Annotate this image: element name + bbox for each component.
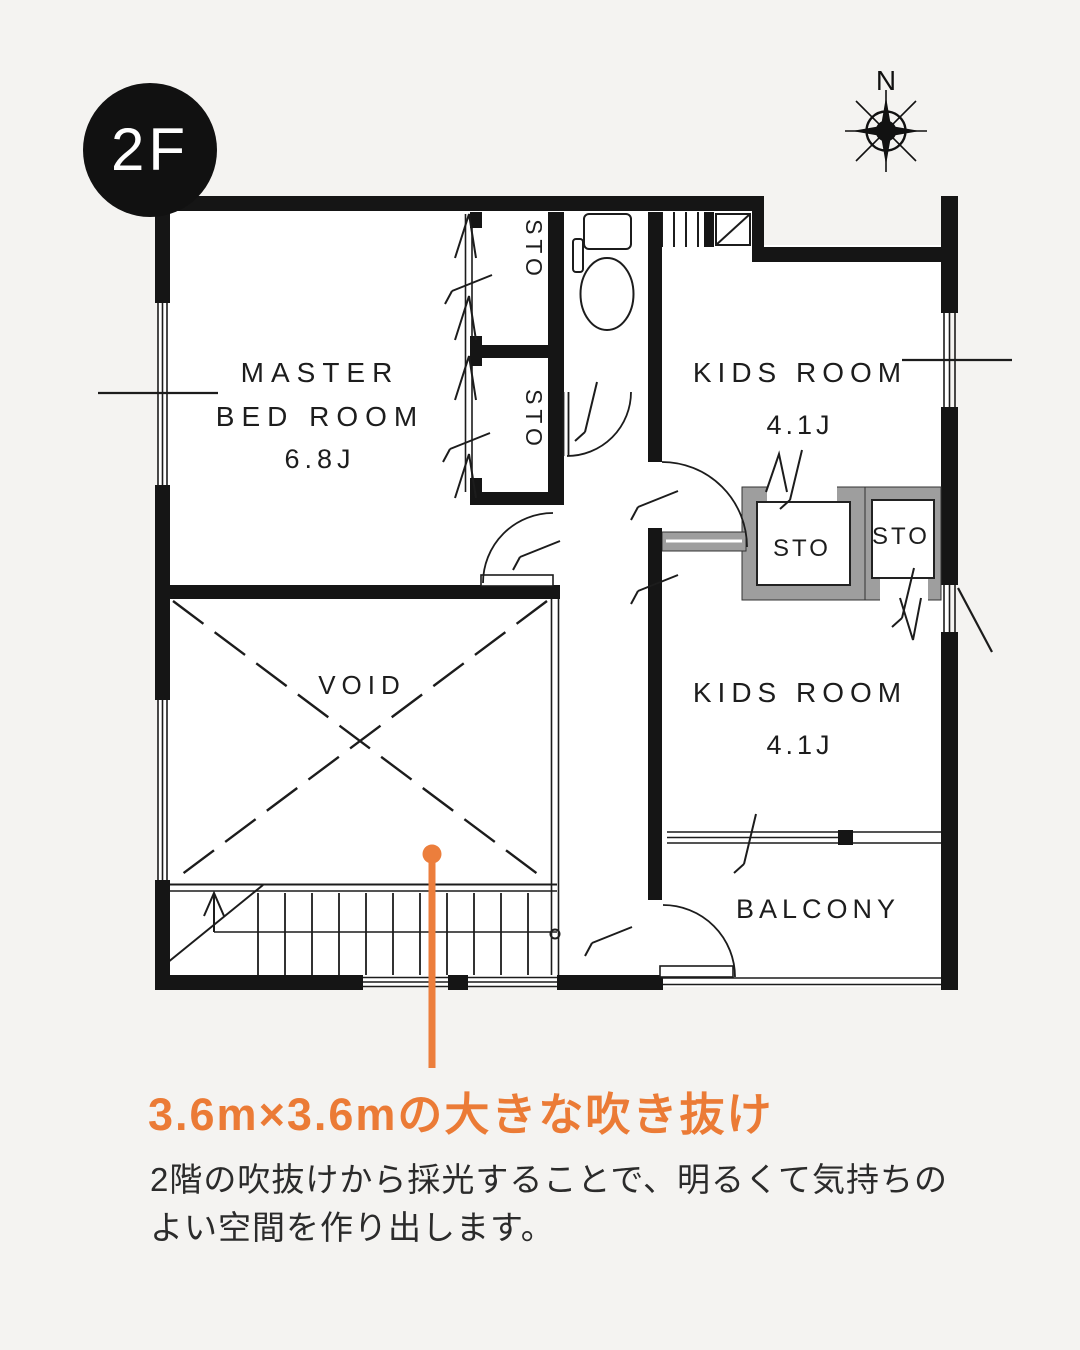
kids-room-2-size: 4.1J: [766, 730, 833, 760]
floor-plan-page: MASTER BED ROOM 6.8J KIDS ROOM 4.1J KIDS…: [0, 0, 1080, 1350]
callout-body-line1: 2階の吹抜けから採光することで、明るくて気持ちの: [150, 1156, 948, 1204]
sto-center-2-label: STO: [872, 523, 930, 550]
kids-room-1-size: 4.1J: [766, 410, 833, 440]
void-label: VOID: [318, 670, 406, 700]
floor-badge-label: 2F: [111, 116, 189, 183]
callout-body-line2: よい空間を作り出します。: [150, 1204, 948, 1252]
sto-closet-1-label: STO: [521, 219, 547, 281]
compass-icon: [845, 90, 927, 172]
floor-plan-svg: MASTER BED ROOM 6.8J KIDS ROOM 4.1J KIDS…: [0, 0, 1080, 1350]
master-bedroom-label-line2: BED ROOM: [216, 401, 424, 432]
floor-badge: 2F: [83, 83, 217, 217]
master-bedroom-size: 6.8J: [284, 444, 355, 474]
callout-body: 2階の吹抜けから採光することで、明るくて気持ちの よい空間を作り出します。: [150, 1156, 948, 1251]
sto-closet-2-label: STO: [521, 389, 547, 451]
balcony-label: BALCONY: [736, 894, 900, 924]
kids-room-2-label: KIDS ROOM: [693, 677, 907, 708]
master-bedroom-label-line1: MASTER: [241, 357, 400, 388]
sto-center-1-label: STO: [773, 535, 831, 562]
callout-heading: 3.6m×3.6mの大きな吹き抜け: [148, 1078, 773, 1143]
compass-north-label: N: [876, 65, 896, 96]
kids-room-1-label: KIDS ROOM: [693, 357, 907, 388]
